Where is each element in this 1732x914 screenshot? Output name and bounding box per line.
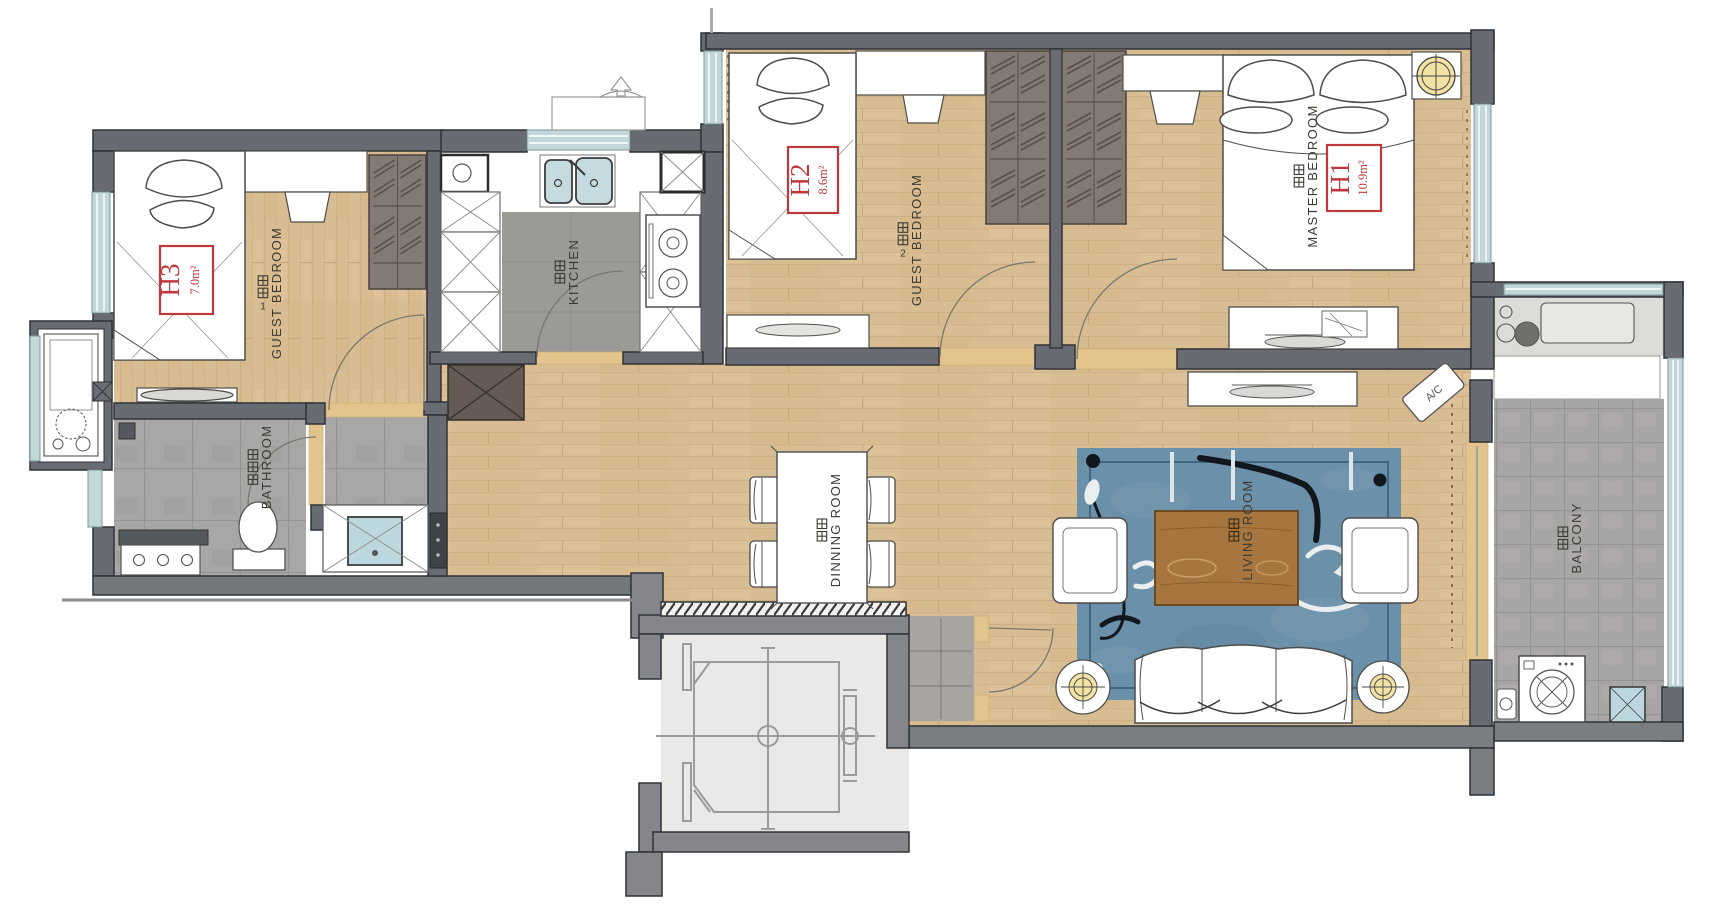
svg-text:BATHROOM: BATHROOM (259, 425, 274, 510)
svg-text:8.6m²: 8.6m² (816, 165, 830, 194)
svg-text:10.9m²: 10.9m² (1356, 160, 1370, 196)
svg-text:2: 2 (900, 249, 906, 260)
svg-text:H1: H1 (1325, 162, 1355, 195)
svg-text:DINNING ROOM: DINNING ROOM (828, 473, 843, 588)
svg-text:BALCONY: BALCONY (1569, 502, 1584, 573)
svg-text:1: 1 (260, 302, 266, 313)
svg-text:GUEST BEDROOM: GUEST BEDROOM (909, 174, 924, 306)
svg-text:H3: H3 (155, 264, 185, 297)
svg-text:KITCHEN: KITCHEN (566, 239, 581, 305)
svg-text:H2: H2 (785, 164, 815, 197)
svg-text:MASTER BEDROOM: MASTER BEDROOM (1305, 104, 1320, 247)
svg-text:LIVING ROOM: LIVING ROOM (1240, 480, 1255, 581)
svg-text:7.0m²: 7.0m² (188, 265, 202, 294)
svg-text:GUEST BEDROOM: GUEST BEDROOM (269, 227, 284, 359)
